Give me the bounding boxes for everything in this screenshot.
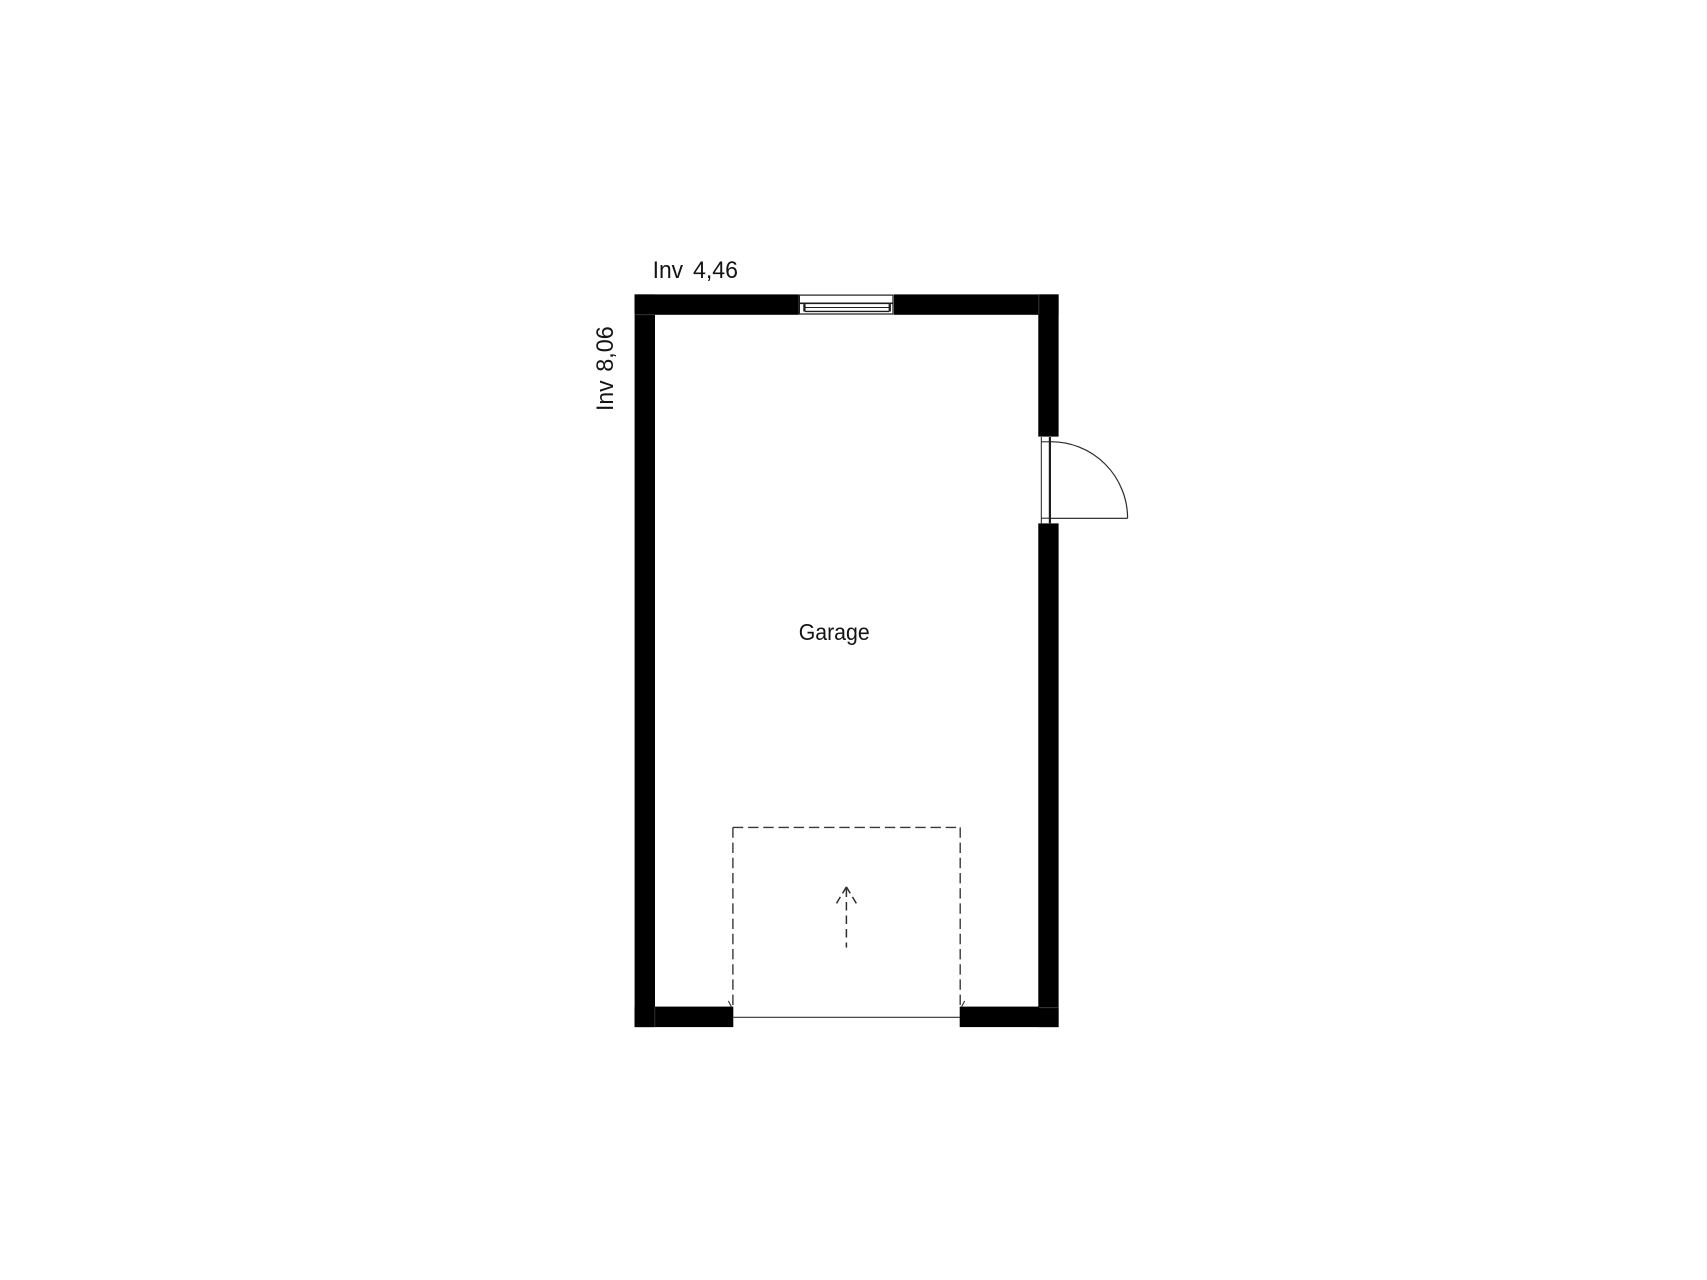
svg-text:Inv: Inv	[653, 257, 684, 284]
svg-text:Inv: Inv	[592, 381, 619, 412]
svg-text:4,46: 4,46	[693, 257, 738, 284]
svg-text:8,06: 8,06	[592, 326, 619, 372]
svg-text:Garage: Garage	[799, 619, 870, 645]
